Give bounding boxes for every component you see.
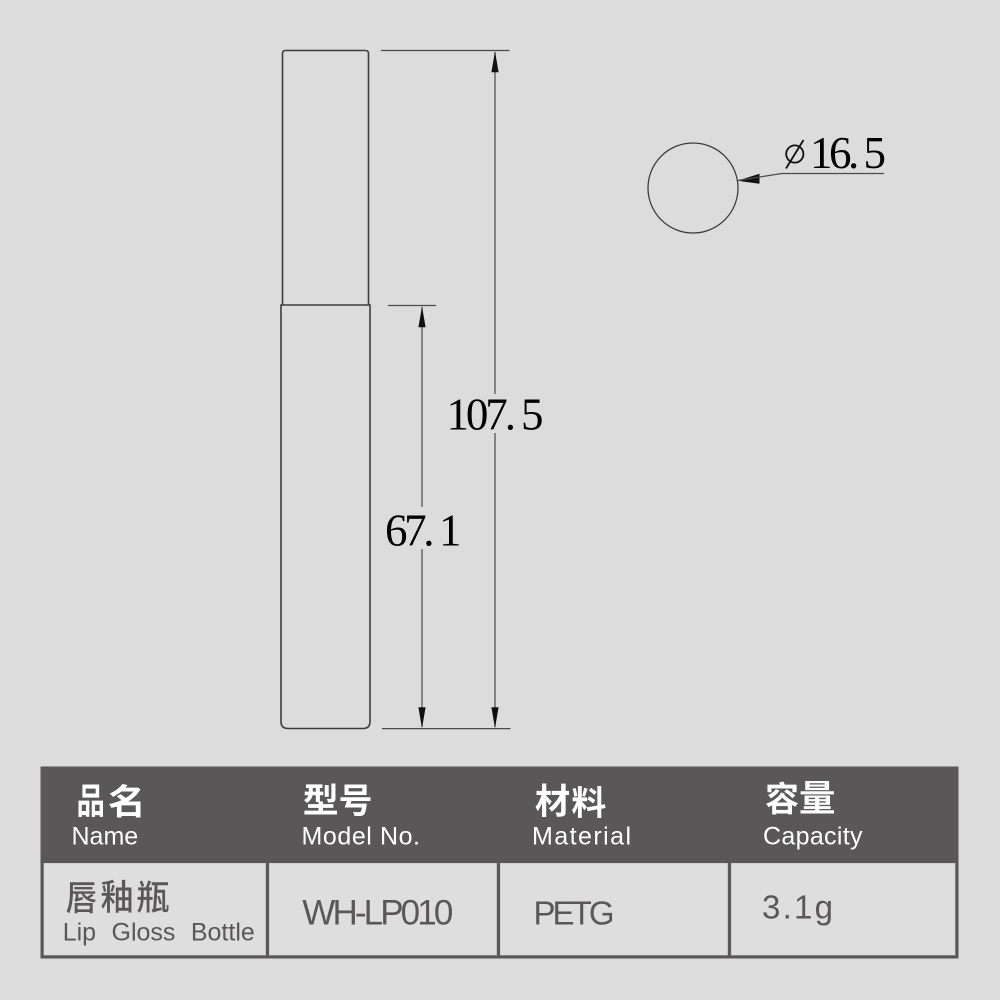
svg-text:3.1g: 3.1g [762, 889, 833, 926]
svg-text:Capacity: Capacity [763, 823, 863, 851]
svg-text:16. 5: 16. 5 [810, 128, 886, 178]
svg-text:Material: Material [532, 823, 631, 851]
svg-text:PETG: PETG [534, 895, 615, 932]
svg-text:Name: Name [72, 823, 139, 851]
svg-text:107. 5: 107. 5 [447, 389, 544, 439]
svg-text:Lip Gloss Bottle: Lip Gloss Bottle [63, 918, 255, 946]
svg-text:WH-LP010: WH-LP010 [302, 894, 453, 933]
svg-text:Model No.: Model No. [302, 823, 421, 851]
svg-text:67. 1: 67. 1 [385, 506, 462, 556]
